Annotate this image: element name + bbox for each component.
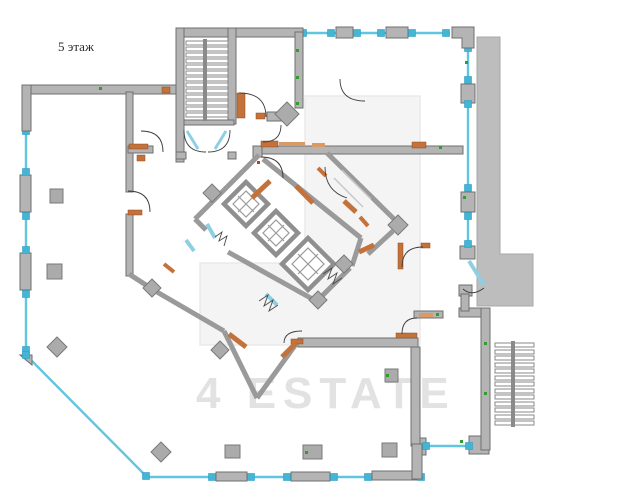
floor-plan-canvas: 4 ESTATE 5 этаж [0, 0, 625, 490]
staircase-top [186, 39, 228, 121]
floor-label: 5 этаж [58, 39, 95, 54]
exterior-mass [477, 37, 533, 306]
staircase-bottom [495, 341, 534, 427]
floor-plan-page: 4 ESTATE 5 этаж [0, 0, 625, 490]
watermark-box [200, 96, 420, 345]
